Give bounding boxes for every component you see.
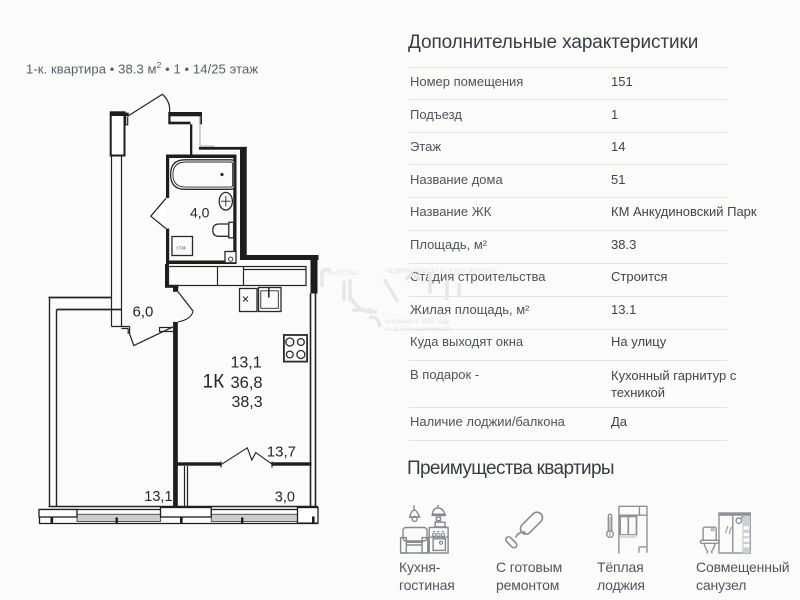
svg-text:36,8: 36,8	[231, 374, 263, 392]
svg-text:6,0: 6,0	[133, 304, 154, 321]
svg-text:13,1: 13,1	[144, 489, 172, 505]
svg-text:4,0: 4,0	[190, 205, 210, 221]
svg-text:на рынке недвижимости: на рынке недвижимости	[385, 327, 452, 333]
svg-text:38,3: 38,3	[232, 394, 263, 411]
svg-text:основано в 1997 году: основано в 1997 году	[385, 318, 450, 325]
svg-text:ст.м: ст.м	[177, 246, 187, 252]
svg-text:3,0: 3,0	[275, 490, 295, 506]
svg-text:1К: 1К	[203, 372, 225, 393]
svg-text:НЕДВИЖИМОСТИ И ЦЕНТР ИПОТЕКИ: НЕДВИЖИМОСТИ И ЦЕНТР ИПОТЕКИ	[386, 269, 497, 275]
svg-text:13,7: 13,7	[267, 444, 296, 461]
svg-text:13,1: 13,1	[231, 355, 262, 372]
